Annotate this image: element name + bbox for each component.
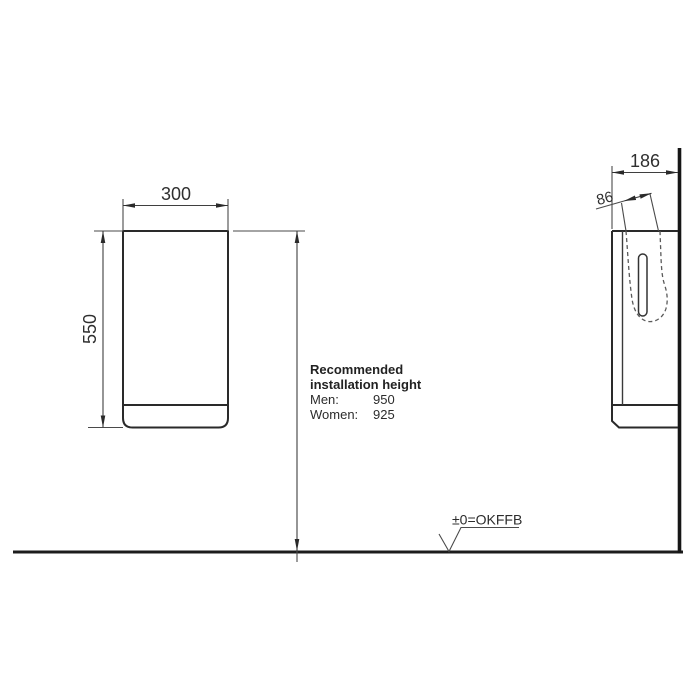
depth-dimension-label: 186 — [630, 151, 660, 171]
width-dimension-label: 300 — [161, 184, 191, 204]
installation-note-title-2: installation height — [310, 377, 422, 392]
height-dimension-label: 550 — [80, 314, 100, 344]
side-view-hidden-contour — [626, 231, 667, 322]
height-dimension: 550 — [80, 231, 123, 428]
front-view-outline — [123, 231, 228, 428]
width-dimension: 300 — [123, 184, 228, 231]
installation-note: Recommended installation height Men: 950… — [310, 362, 422, 422]
installation-note-women-value: 925 — [373, 407, 395, 422]
installation-height-dimension — [233, 231, 305, 562]
installation-note-title-1: Recommended — [310, 362, 403, 377]
side-view-slot — [639, 254, 648, 316]
floor-level-marker: ±0=OKFFB — [439, 512, 522, 552]
offset-dimension: 86 — [595, 188, 659, 231]
technical-drawing-canvas: 300 550 186 — [0, 0, 700, 700]
floor-level-label: ±0=OKFFB — [452, 512, 522, 528]
drawing-svg: 300 550 186 — [0, 0, 700, 700]
installation-note-women-label: Women: — [310, 407, 358, 422]
depth-dimension: 186 — [612, 151, 678, 229]
installation-note-men-label: Men: — [310, 392, 339, 407]
installation-note-men-value: 950 — [373, 392, 395, 407]
